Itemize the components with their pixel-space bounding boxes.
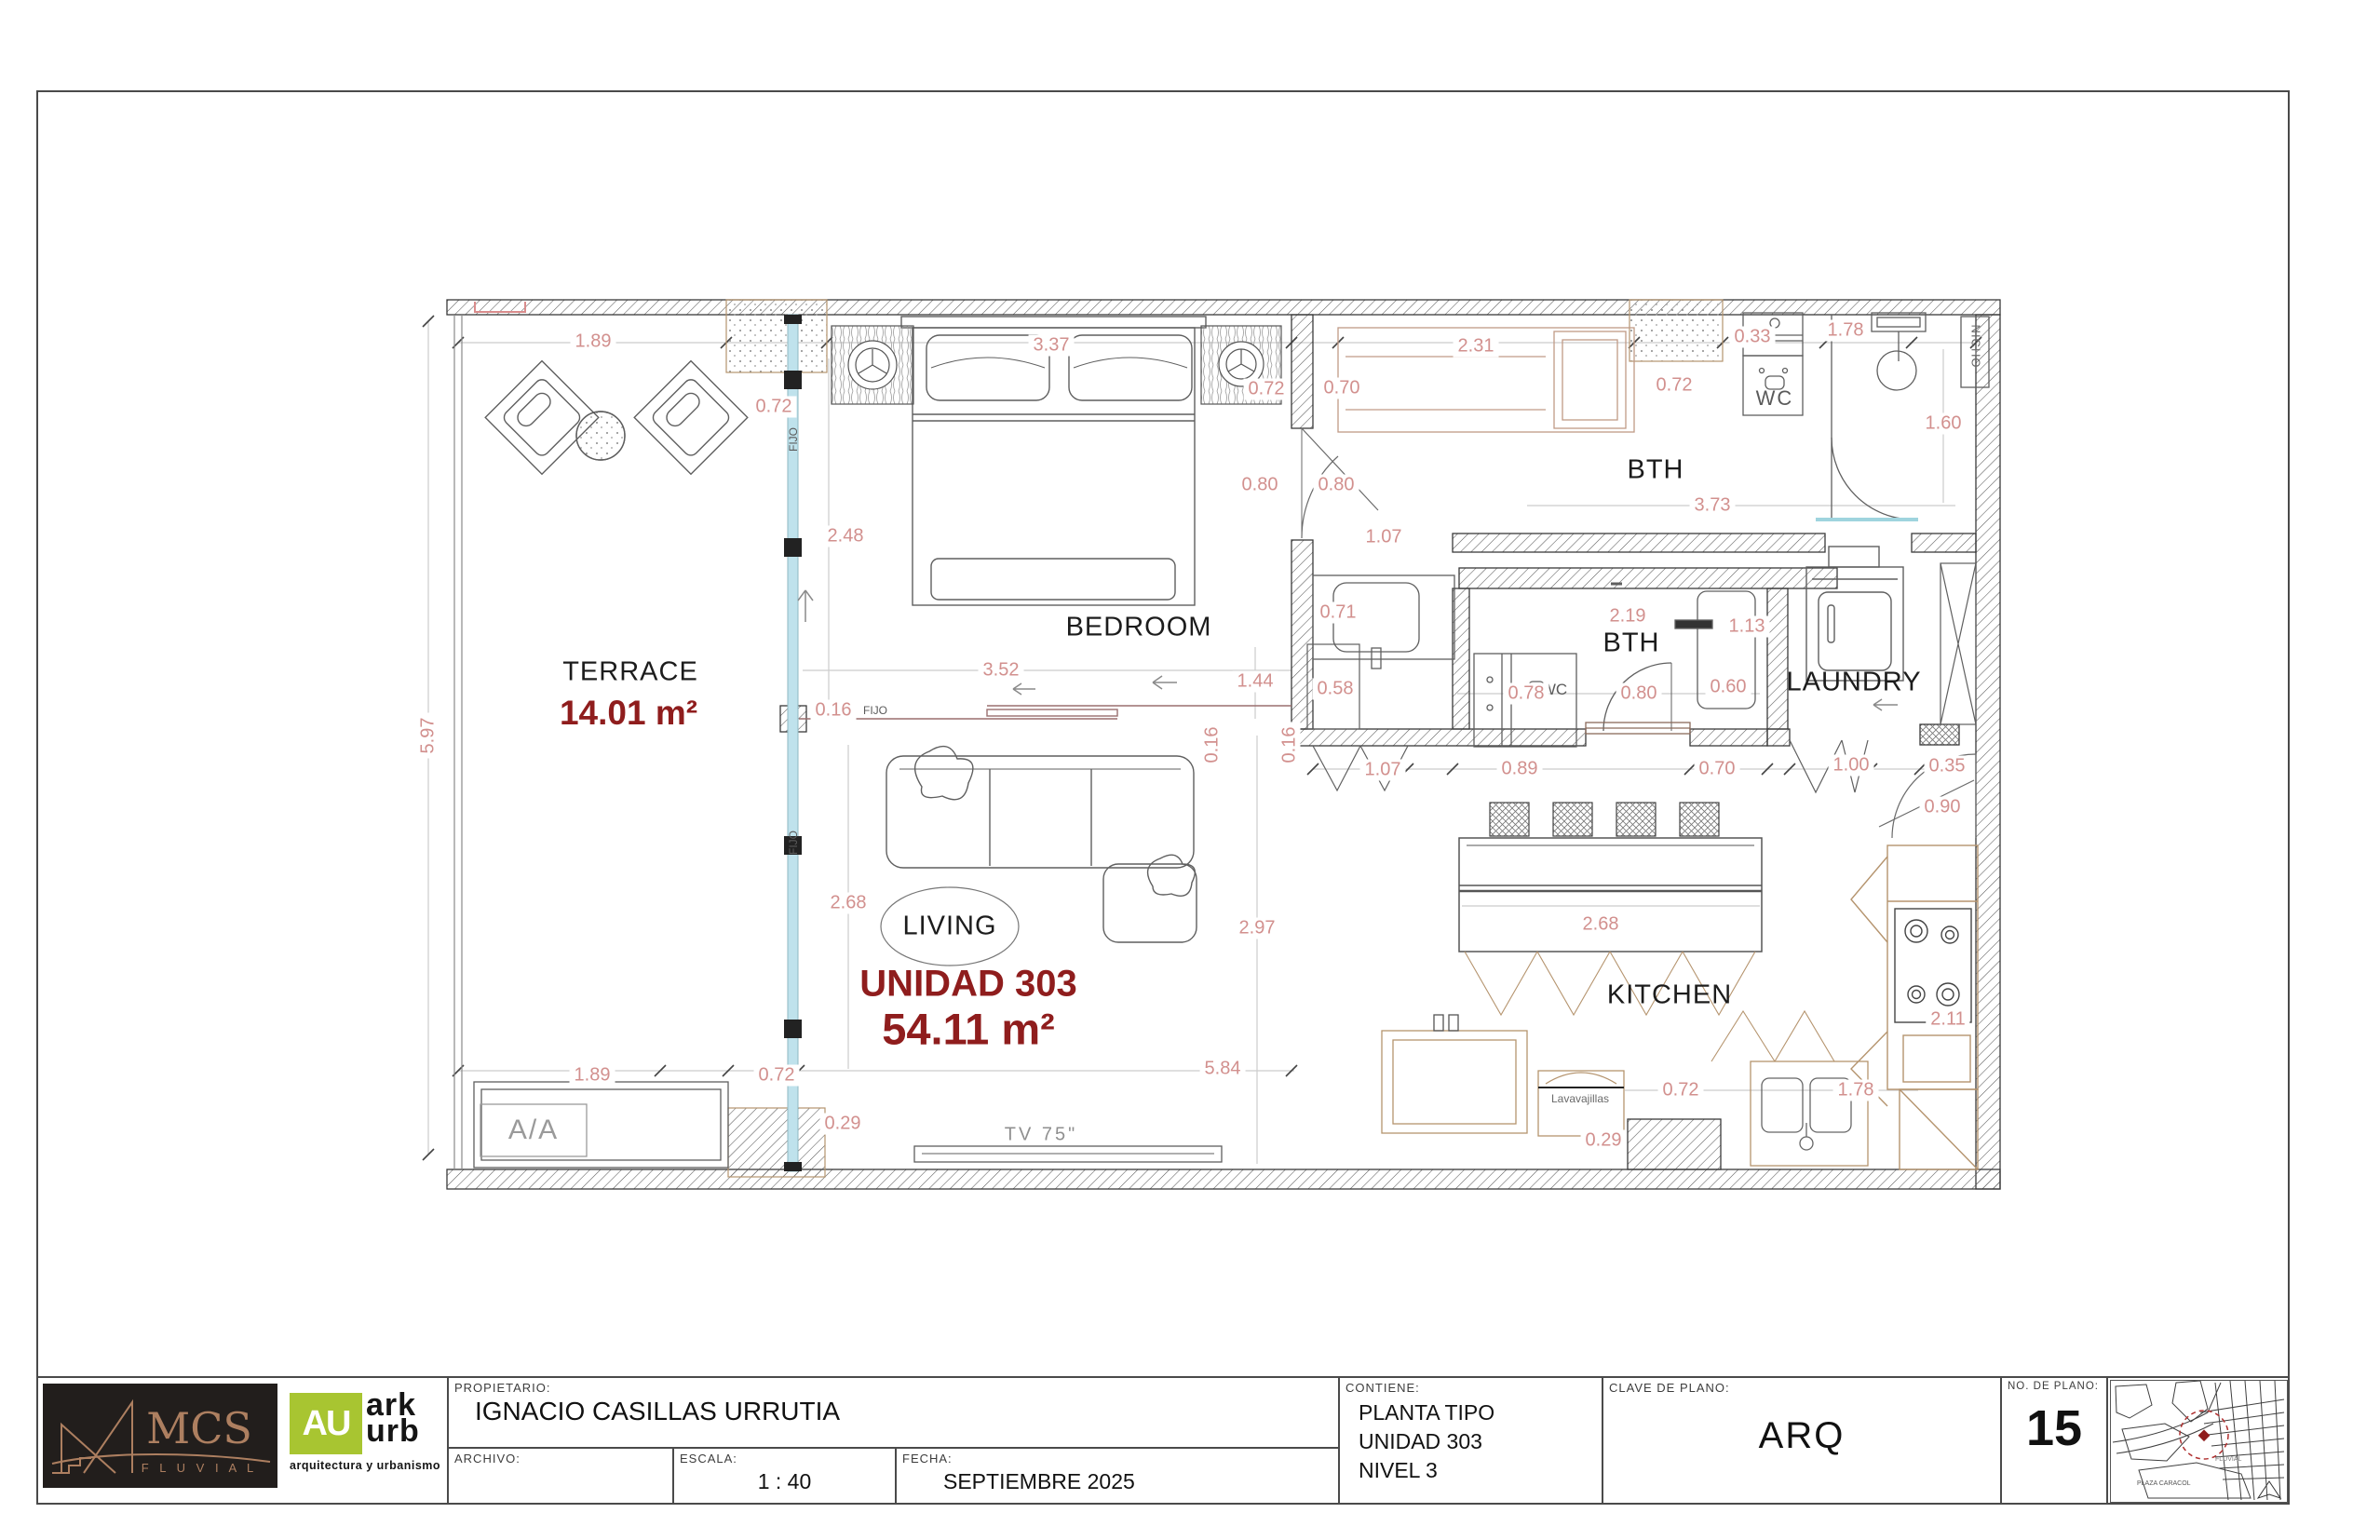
lavavajillas-label: Lavavajillas: [1551, 1092, 1609, 1105]
dim-terrace-top: 1.89: [571, 331, 616, 353]
clave-value: ARQ: [1603, 1395, 2000, 1457]
unit-area: 54.11 m²: [882, 1004, 1055, 1055]
bth2-label: BTH: [1603, 628, 1660, 659]
num-plano-value: 15: [2002, 1392, 2106, 1457]
propietario-label: PROPIETARIO:: [449, 1378, 1338, 1395]
dim-hall-b: 0.80: [1314, 475, 1359, 496]
dim-entry: 0.90: [1920, 797, 1966, 818]
laundry-label: LAUNDRY: [1786, 668, 1921, 698]
dim-hall-a: 0.80: [1237, 475, 1283, 496]
dim-hall-d: 0.70: [1695, 759, 1740, 780]
escala-value: 1 : 40: [674, 1466, 895, 1494]
bedroom-label: BEDROOM: [1066, 613, 1212, 643]
dim-bath2-b: 0.80: [1616, 683, 1662, 705]
archivo-label: ARCHIVO:: [449, 1449, 672, 1466]
dim-closet-058: 0.58: [1313, 679, 1359, 700]
ark-urb-logo: AU ark urb arquitectura y urbanismo: [290, 1393, 443, 1472]
dim-living-b: 2.97: [1235, 918, 1280, 939]
plan-text-layer: TERRACE14.01 m²BEDROOMBTHBTHLAUNDRYLIVIN…: [0, 0, 2380, 1540]
tv-label: TV 75": [1005, 1125, 1077, 1146]
living-label: LIVING: [902, 912, 996, 942]
ark-urb-tagline: arquitectura y urbanismo: [290, 1459, 443, 1472]
location-map-thumbnail: PLAZA CARACOL FLUVIAL: [2110, 1380, 2288, 1503]
dim-win-bottom: 0.72: [754, 1065, 800, 1087]
dim-hall-v: 1.44: [1233, 671, 1278, 693]
location-map-cell: PLAZA CARACOL FLUVIAL: [2106, 1378, 2288, 1505]
fijo-label-1: FIJO: [787, 427, 800, 452]
unit-label: UNIDAD 303: [859, 964, 1076, 1006]
dim-living-w: 5.84: [1200, 1059, 1246, 1080]
mcs-fluvial-logo: MCS F L U V I A L: [43, 1384, 277, 1488]
dim-vanity: 0.71: [1316, 602, 1361, 624]
dim-laundry-door: 1.00: [1829, 755, 1874, 777]
dim-bed-width: 3.37: [1029, 335, 1075, 357]
dim-wall-016: 0.16: [811, 700, 857, 722]
dim-bed-window: 3.52: [979, 660, 1024, 682]
wc1-label: WC: [1756, 386, 1794, 411]
dim-bath2-c: 0.60: [1706, 677, 1751, 698]
escala-cell: ESCALA: 1 : 40: [672, 1447, 895, 1505]
dim-wall-016-b: 0.16: [1279, 723, 1301, 768]
bth1-label: BTH: [1628, 455, 1684, 486]
dim-living-a: 2.68: [826, 893, 872, 914]
dim-kitchen-b: 1.78: [1833, 1080, 1879, 1101]
fecha-label: FECHA:: [897, 1449, 1338, 1466]
archivo-cell: ARCHIVO:: [447, 1447, 672, 1505]
dim-closet-depth: 0.70: [1319, 378, 1365, 399]
dim-bath1-c: 0.72: [1652, 375, 1697, 397]
dim-pier: 0.35: [1925, 756, 1970, 777]
dim-bath1-a: 0.33: [1730, 327, 1776, 348]
dim-bath2-a: 0.78: [1504, 683, 1549, 705]
contiene-line-2: UNIDAD 303: [1359, 1427, 1602, 1456]
map-label-plaza: PLAZA CARACOL: [2137, 1480, 2191, 1487]
contiene-label: CONTIENE:: [1340, 1378, 1602, 1395]
mcs-sub: F L U V I A L: [142, 1461, 258, 1475]
dim-kitchen-v: 2.11: [1926, 1009, 1969, 1031]
dim-island: 2.68: [1578, 914, 1624, 936]
nicho-label: NICHO: [1969, 325, 1983, 369]
aa-label: A/A: [508, 1114, 559, 1146]
dim-bed-side: 2.48: [823, 526, 869, 547]
dim-tv-wall: 0.29: [820, 1114, 866, 1135]
fecha-value: SEPTIEMBRE 2025: [897, 1466, 1338, 1494]
kitchen-label: KITCHEN: [1607, 980, 1732, 1011]
dim-kitchen-a: 0.72: [1658, 1080, 1704, 1101]
contiene-line-3: NIVEL 3: [1359, 1456, 1602, 1485]
clave-label: CLAVE DE PLANO:: [1603, 1378, 2000, 1395]
dim-shower2: 1.13: [1724, 616, 1770, 638]
dim-terrace-height: 5.97: [418, 713, 439, 759]
num-plano-label: NO. DE PLANO:: [2002, 1378, 2106, 1392]
dim-bath1-b: 1.78: [1823, 320, 1869, 342]
dim-door-bed: 1.07: [1361, 527, 1407, 548]
title-block: MCS F L U V I A L AU ark urb arquitectur…: [36, 1376, 2288, 1505]
fijo-label-2: FIJO: [787, 831, 800, 855]
propietario-value: IGNACIO CASILLAS URRUTIA: [449, 1395, 1338, 1426]
dim-hall-c: 0.89: [1497, 759, 1543, 780]
fijo-label-3: FIJO: [863, 704, 887, 717]
map-label-fluvial: FLUVIAL: [2215, 1456, 2242, 1463]
dim-terrace-bottom: 1.89: [570, 1065, 615, 1087]
contiene-line-1: PLANTA TIPO: [1359, 1398, 1602, 1427]
mcs-name: MCS: [146, 1403, 252, 1453]
title-block-logos-cell: MCS F L U V I A L AU ark urb arquitectur…: [36, 1378, 447, 1505]
dim-bath1-d: 1.60: [1921, 413, 1967, 435]
dim-bath1-w: 3.73: [1690, 495, 1736, 517]
escala-label: ESCALA:: [674, 1449, 895, 1466]
dim-wall-016-c: 0.16: [1202, 723, 1224, 768]
dim-closet: 2.31: [1454, 336, 1499, 358]
terrace-label: TERRACE: [562, 657, 698, 688]
clave-cell: CLAVE DE PLANO: ARQ: [1602, 1378, 2000, 1505]
dim-kitchen-c: 0.29: [1581, 1130, 1627, 1152]
fecha-cell: FECHA: SEPTIEMBRE 2025: [895, 1447, 1338, 1505]
dim-chase: 0.72: [1244, 379, 1290, 400]
num-plano-cell: NO. DE PLANO: 15: [2000, 1378, 2106, 1505]
contiene-cell: CONTIENE: PLANTA TIPO UNIDAD 303 NIVEL 3: [1338, 1378, 1602, 1505]
dim-hall-door: 1.07: [1360, 760, 1406, 781]
propietario-cell: PROPIETARIO: IGNACIO CASILLAS URRUTIA: [447, 1378, 1338, 1447]
ark-urb-line2: urb: [366, 1419, 420, 1445]
dim-terrace-win: 0.72: [751, 397, 797, 418]
terrace-area: 14.01 m²: [560, 694, 697, 733]
dim-bath2-w: 2.19: [1605, 606, 1651, 628]
ark-urb-monogram-icon: AU: [290, 1393, 362, 1454]
